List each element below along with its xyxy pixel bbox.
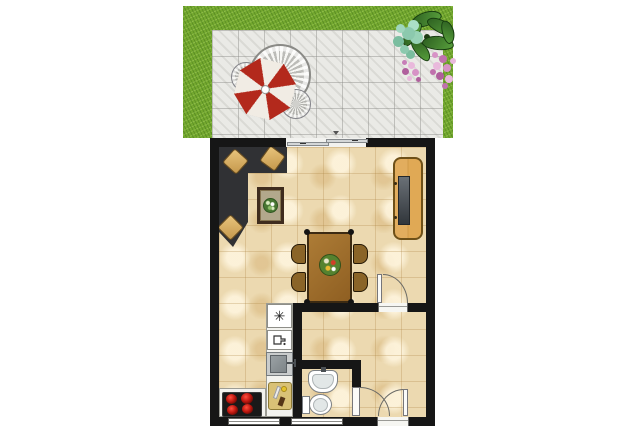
outer-wall-right	[426, 147, 435, 426]
freezer: ✳	[267, 304, 292, 328]
garden-plant	[392, 8, 460, 92]
table-centerpiece	[319, 254, 341, 276]
fridge-icon	[272, 334, 287, 347]
outer-wall-left	[210, 147, 219, 426]
bathroom-wall-right	[352, 369, 361, 387]
stove-burner	[241, 393, 253, 404]
toilet-bowl-inner	[313, 398, 328, 412]
interior-wall-horizontal	[408, 303, 426, 312]
entrance-door-leaf	[403, 389, 408, 416]
interior-wall-horizontal	[293, 303, 378, 312]
patio-door-marker	[333, 131, 339, 135]
lemon	[281, 386, 287, 392]
dining-chair	[353, 272, 368, 292]
refrigerator	[267, 330, 292, 350]
teal-shrub	[396, 24, 405, 33]
living-door-threshold	[378, 303, 408, 312]
pink-flowers	[402, 60, 407, 65]
sliding-door-panel	[287, 142, 329, 146]
bathroom-wall-top	[302, 360, 361, 369]
freezer-icon: ✳	[274, 309, 286, 323]
stove-burner	[227, 405, 238, 415]
coffee-table-plant	[263, 198, 278, 213]
floor-plan-canvas: ✳	[0, 0, 640, 427]
kitchen-faucet	[294, 359, 296, 367]
basin-faucet	[321, 367, 326, 372]
parasol-center	[260, 84, 271, 95]
kitchen-sink-basin	[270, 355, 287, 373]
stove-burner	[226, 394, 237, 404]
tv-screen	[398, 176, 410, 225]
dining-chair	[291, 272, 306, 292]
sliding-door-panel	[326, 139, 368, 143]
sliding-door-arrow	[352, 140, 358, 141]
dining-chair	[291, 244, 306, 264]
stove-burner	[242, 404, 253, 414]
cabinet-knob	[394, 182, 397, 185]
bathroom-window	[291, 418, 343, 425]
entrance-threshold	[377, 417, 409, 426]
pink-flowers	[432, 52, 438, 58]
kitchen-window	[228, 418, 280, 425]
dining-chair	[353, 244, 368, 264]
table-corner-knob	[348, 229, 354, 235]
living-door-leaf	[377, 274, 382, 303]
sliding-door-arrow	[300, 143, 306, 144]
bathroom-door-leaf	[352, 387, 360, 416]
table-corner-knob	[304, 229, 310, 235]
cabinet-knob	[394, 216, 397, 219]
